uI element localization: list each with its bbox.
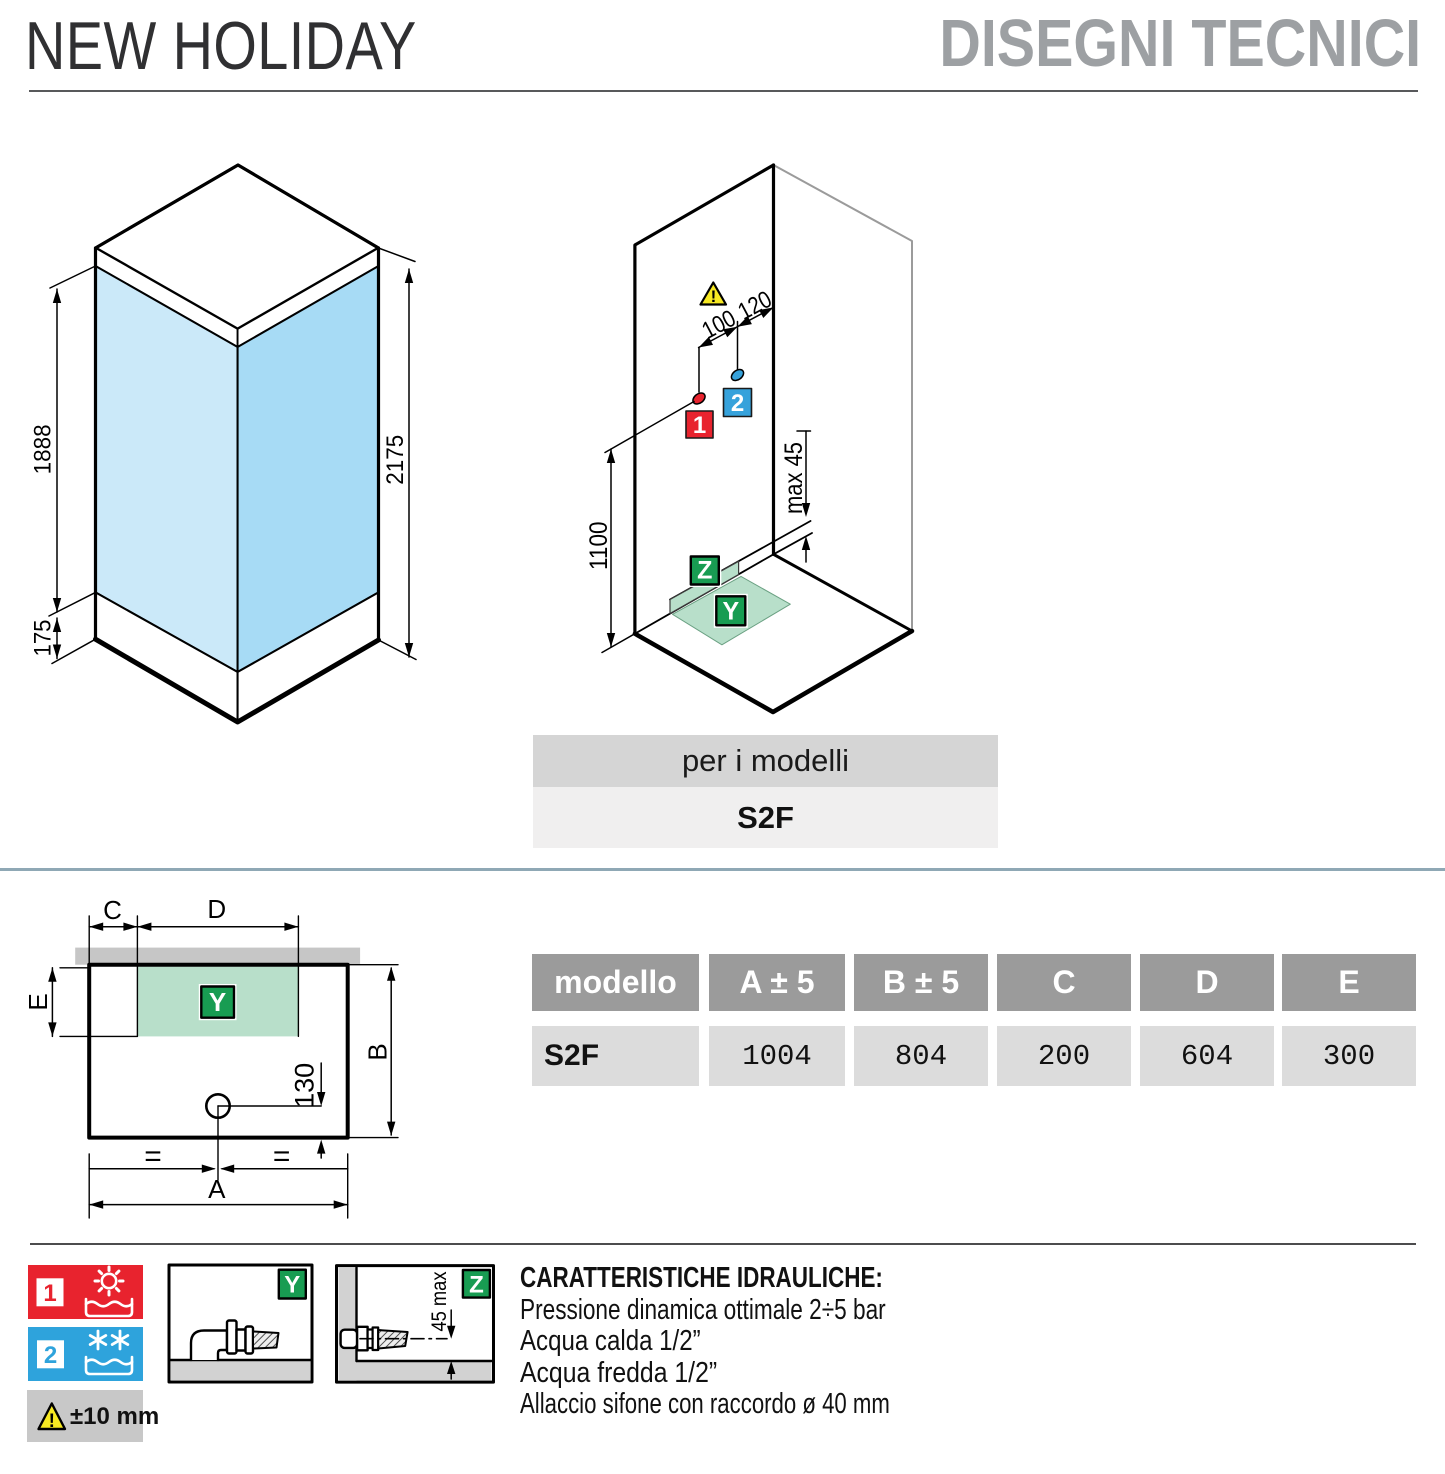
svg-text:45 max: 45 max [428, 1271, 451, 1331]
svg-text:A: A [208, 1174, 226, 1204]
svg-text:Z: Z [697, 557, 712, 585]
svg-text:E: E [23, 993, 53, 1010]
svg-text:2175: 2175 [382, 435, 409, 485]
svg-text:max 45: max 45 [780, 442, 808, 514]
svg-text:1100: 1100 [585, 521, 613, 570]
svg-text:1: 1 [693, 412, 706, 439]
svg-text:Z: Z [469, 1272, 484, 1299]
svg-text:D: D [207, 894, 226, 924]
svg-text:B: B [363, 1043, 393, 1060]
svg-text:130: 130 [290, 1063, 320, 1108]
svg-text:Y: Y [722, 598, 739, 626]
svg-text:C: C [103, 895, 122, 925]
svg-text:Y: Y [209, 987, 226, 1017]
svg-text:1888: 1888 [30, 424, 57, 474]
svg-text:!: ! [711, 287, 717, 306]
svg-text:175: 175 [30, 620, 57, 657]
svg-text:2: 2 [731, 390, 744, 417]
